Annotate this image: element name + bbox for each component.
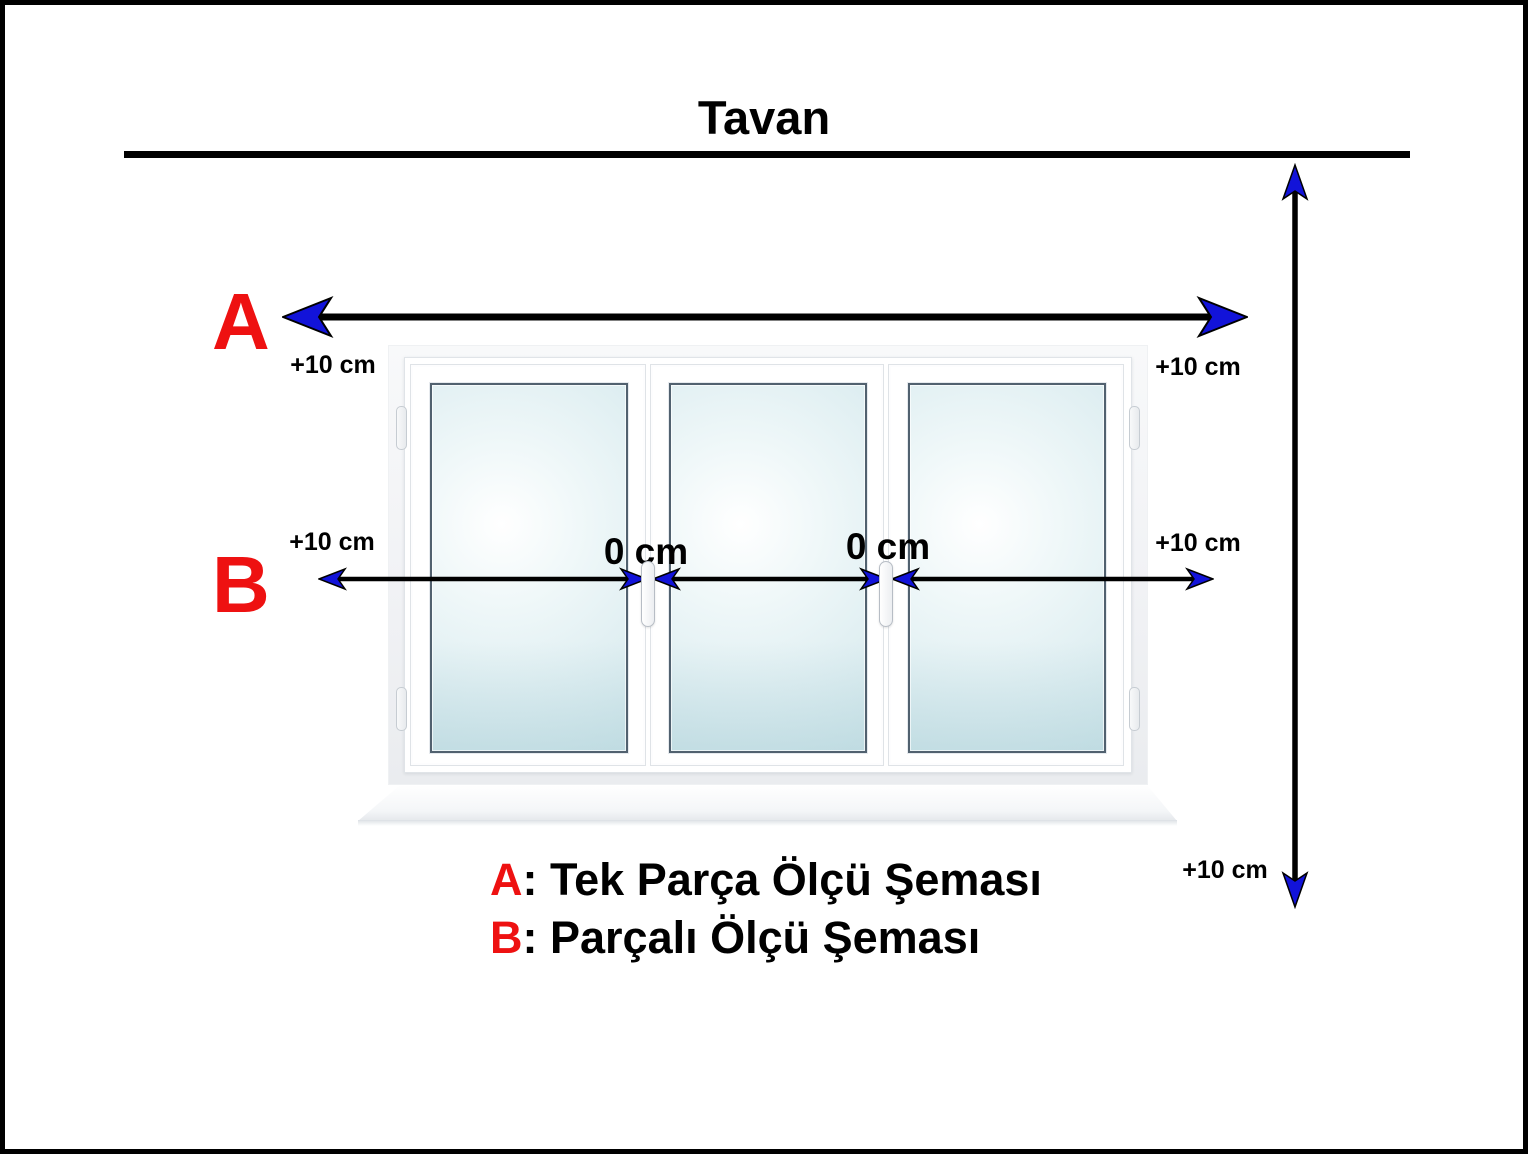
- scheme-a-arrow: [282, 295, 1248, 339]
- window-sill-shadow: [358, 820, 1177, 826]
- label-b-left-plus10: +10 cm: [277, 530, 387, 555]
- label-a-left-plus10: +10 cm: [278, 353, 388, 378]
- legend-letter-a: A: [490, 854, 523, 905]
- legend-text-b: : Parçalı Ölçü Şeması: [523, 912, 981, 963]
- window-sill: [356, 785, 1180, 822]
- scheme-b-letter: B: [212, 545, 270, 625]
- pane-handle-right-icon: [879, 561, 893, 627]
- ceiling-title: Tavan: [0, 90, 1528, 145]
- scheme-a-letter: A: [212, 282, 270, 362]
- label-b-joint2-0cm: 0 cm: [833, 528, 943, 565]
- label-a-right-plus10: +10 cm: [1143, 355, 1253, 380]
- scheme-b-arrow-segment-2: [652, 564, 888, 594]
- label-b-right-plus10: +10 cm: [1143, 531, 1253, 556]
- scheme-b-arrow-segment-3: [891, 564, 1214, 594]
- legend: A: Tek Parça Ölçü Şeması B: Parçalı Ölçü…: [490, 851, 1042, 967]
- pane-handle-left-icon: [641, 561, 655, 627]
- height-arrow: [1275, 163, 1315, 909]
- frame-hinge-top-left-icon: [396, 406, 407, 450]
- legend-text-a: : Tek Parça Ölçü Şeması: [523, 854, 1042, 905]
- legend-item-b: B: Parçalı Ölçü Şeması: [490, 909, 1042, 967]
- label-height-plus10: +10 cm: [1170, 858, 1280, 883]
- scheme-b-arrow-segment-1: [318, 564, 648, 594]
- frame-hinge-top-right-icon: [1129, 406, 1140, 450]
- ceiling-line: [124, 151, 1410, 158]
- legend-item-a: A: Tek Parça Ölçü Şeması: [490, 851, 1042, 909]
- frame-hinge-bottom-right-icon: [1129, 687, 1140, 731]
- diagram-canvas: Tavan A +10 cm +10 cm B +10 cm 0 cm: [0, 0, 1528, 1154]
- frame-hinge-bottom-left-icon: [396, 687, 407, 731]
- legend-letter-b: B: [490, 912, 523, 963]
